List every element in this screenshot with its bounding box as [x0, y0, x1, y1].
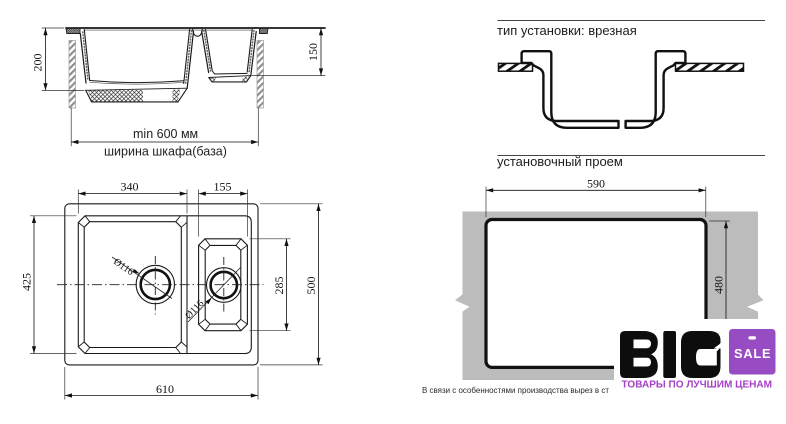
svg-text:150: 150: [306, 43, 320, 61]
svg-text:610: 610: [156, 382, 174, 396]
svg-text:425: 425: [20, 273, 34, 291]
svg-text:340: 340: [121, 180, 139, 194]
svg-text:590: 590: [587, 177, 605, 191]
svg-text:200: 200: [31, 54, 45, 72]
svg-text:155: 155: [214, 180, 232, 194]
svg-text:285: 285: [272, 277, 286, 295]
svg-text:тип установки: врезная: тип установки: врезная: [497, 23, 637, 38]
svg-text:SALE: SALE: [734, 346, 771, 361]
svg-text:ТОВАРЫ ПО ЛУЧШИМ ЦЕНАМ: ТОВАРЫ ПО ЛУЧШИМ ЦЕНАМ: [622, 380, 773, 391]
svg-text:установочный проем: установочный проем: [497, 154, 623, 169]
svg-text:ширина шкафа(база): ширина шкафа(база): [104, 145, 227, 159]
svg-text:В связи с особенностями произв: В связи с особенностями производства выр…: [422, 385, 609, 395]
svg-text:min 600 мм: min 600 мм: [133, 127, 198, 141]
svg-text:480: 480: [712, 276, 726, 294]
svg-text:500: 500: [304, 277, 318, 295]
